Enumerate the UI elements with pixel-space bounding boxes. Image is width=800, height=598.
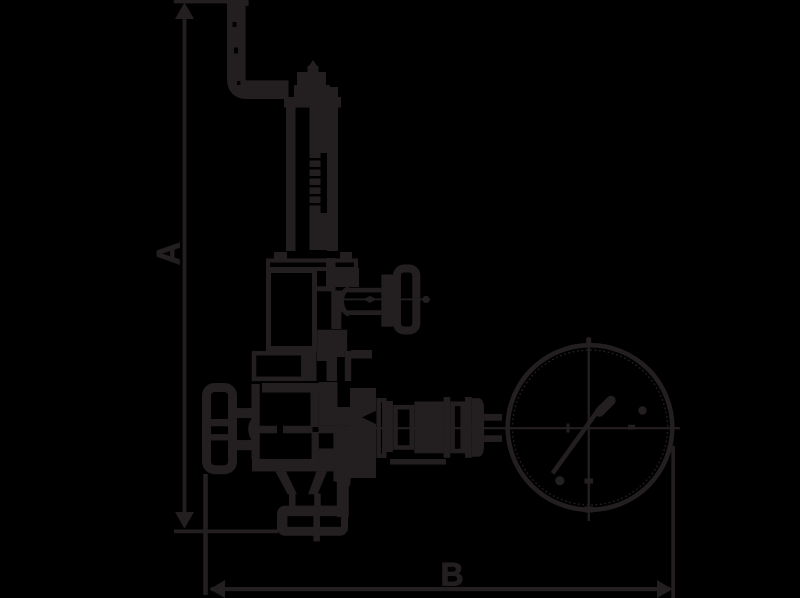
svg-text:B: B: [441, 557, 464, 593]
svg-text:A: A: [150, 242, 186, 265]
